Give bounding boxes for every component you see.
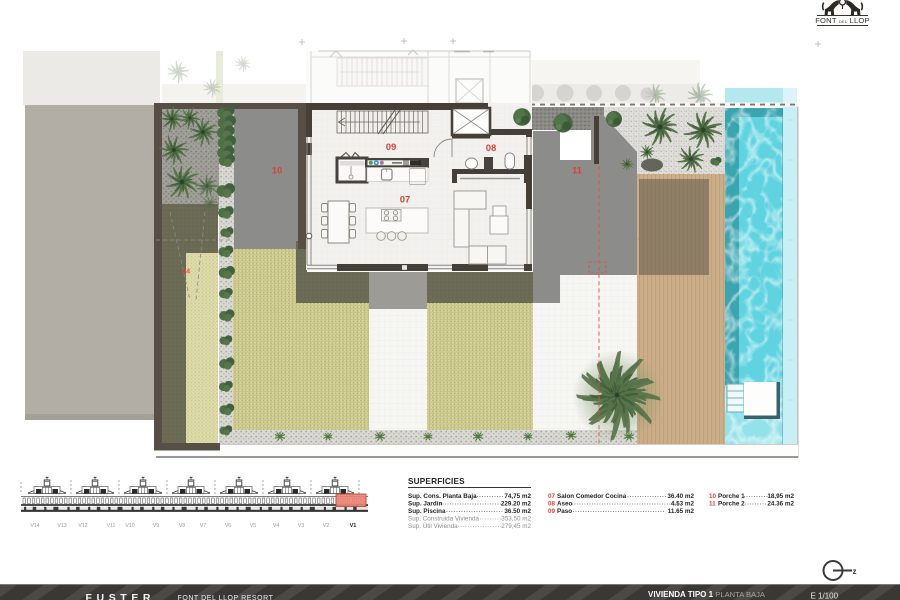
svg-text:FONT DEL LLOP RESORT: FONT DEL LLOP RESORT <box>178 595 274 600</box>
svg-text:08: 08 <box>548 501 556 508</box>
svg-text:V14: V14 <box>30 523 39 529</box>
svg-text:11: 11 <box>709 501 716 508</box>
svg-text:10: 10 <box>272 166 283 177</box>
svg-text:SUPERFICIES: SUPERFICIES <box>408 477 465 486</box>
svg-text:09: 09 <box>386 142 397 153</box>
svg-text:V3: V3 <box>298 523 304 529</box>
svg-text:Salon Comedor Cocina: Salon Comedor Cocina <box>557 493 627 500</box>
svg-text:Sup. Cons. Planta Baja: Sup. Cons. Planta Baja <box>408 493 477 500</box>
svg-text:36.50 m2: 36.50 m2 <box>504 508 531 515</box>
svg-text:36.40 m2: 36.40 m2 <box>667 493 694 500</box>
svg-text:09: 09 <box>548 508 556 515</box>
svg-text:18,95 m2: 18,95 m2 <box>767 493 794 500</box>
svg-text:Paso: Paso <box>557 508 572 515</box>
svg-text:11: 11 <box>572 166 583 177</box>
svg-text:z: z <box>853 567 857 576</box>
svg-text:74,75 m2: 74,75 m2 <box>504 493 531 500</box>
svg-text:04: 04 <box>182 267 191 276</box>
svg-text:E 1/100: E 1/100 <box>811 591 839 600</box>
svg-text:08: 08 <box>486 143 497 154</box>
svg-text:V8: V8 <box>179 523 185 529</box>
svg-text:24.36 m2: 24.36 m2 <box>767 501 794 508</box>
svg-text:Sup. Piscina: Sup. Piscina <box>408 508 446 515</box>
svg-text:353,50 m2: 353,50 m2 <box>501 516 531 523</box>
svg-text:V1: V1 <box>350 523 357 529</box>
svg-text:Sup. Jardin: Sup. Jardin <box>408 501 442 508</box>
svg-text:V2: V2 <box>323 523 329 529</box>
svg-text:Aseo: Aseo <box>557 501 573 508</box>
svg-text:V10: V10 <box>125 523 134 529</box>
svg-text:V4: V4 <box>273 523 279 529</box>
svg-text:Sup. Útil Vivienda: Sup. Útil Vivienda <box>408 521 458 530</box>
svg-text:4.53 m2: 4.53 m2 <box>671 501 695 508</box>
svg-text:V13: V13 <box>57 523 66 529</box>
svg-text:Sup. Construida Vivienda: Sup. Construida Vivienda <box>408 516 479 523</box>
svg-text:VIVIENDA TIPO 1 PLANTA BAJA: VIVIENDA TIPO 1 PLANTA BAJA <box>648 590 766 599</box>
svg-text:07: 07 <box>548 493 556 500</box>
svg-text:V6: V6 <box>225 523 231 529</box>
svg-text:V9: V9 <box>153 523 159 529</box>
svg-text:V12: V12 <box>78 523 87 529</box>
svg-text:V7: V7 <box>200 523 206 529</box>
svg-text:FUSTER: FUSTER <box>86 592 156 600</box>
svg-text:V11: V11 <box>107 523 116 529</box>
svg-text:Porche 2: Porche 2 <box>718 501 745 508</box>
svg-text:10: 10 <box>709 493 717 500</box>
svg-text:229.20 m2: 229.20 m2 <box>501 501 532 508</box>
svg-text:07: 07 <box>400 195 411 206</box>
svg-text:11.65 m2: 11.65 m2 <box>668 508 695 515</box>
svg-text:Porche 1: Porche 1 <box>718 493 745 500</box>
svg-text:V5: V5 <box>250 523 256 529</box>
svg-text:279,45 m2: 279,45 m2 <box>501 523 531 530</box>
